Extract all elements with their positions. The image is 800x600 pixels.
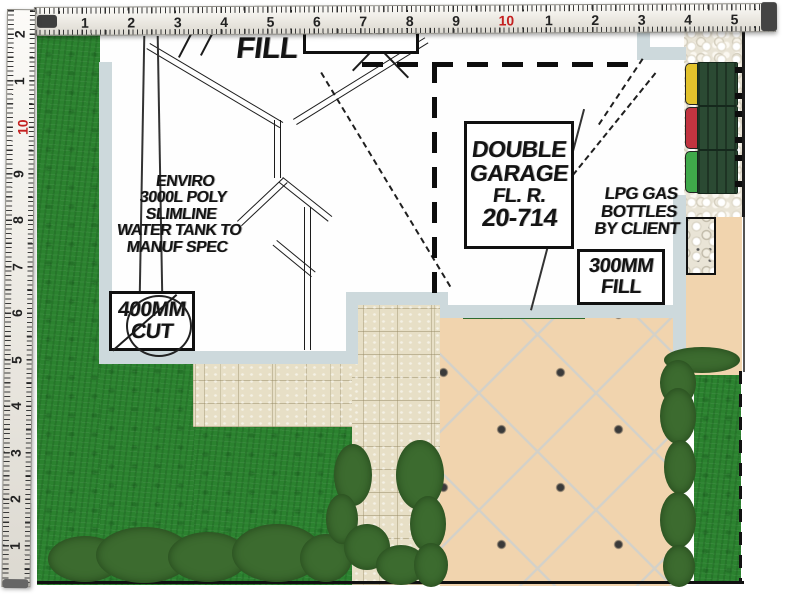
wheelie-bin-yellow[interactable] (685, 62, 739, 104)
roof-ridge-line (274, 120, 281, 178)
box-line: 20-714 (480, 206, 558, 232)
box-line: 300MM (588, 256, 655, 277)
bin-wheel (735, 93, 742, 99)
flower-border-path[interactable] (322, 436, 448, 588)
horizontal-ruler[interactable]: 1234567891012345 (34, 3, 776, 36)
ruler-number: 2 (127, 14, 135, 30)
ruler-number: 4 (684, 11, 692, 27)
ruler-number: 10 (499, 12, 515, 28)
ruler-number: 2 (591, 12, 599, 28)
ruler-number: 2 (7, 495, 23, 503)
ruler-number: 10 (15, 119, 31, 135)
bin-wheel (735, 155, 742, 161)
bin-wheel (735, 181, 742, 187)
ruler-number: 7 (9, 263, 25, 271)
note-line: WATER TANK TO (102, 223, 256, 239)
paved-court-diamond[interactable] (440, 317, 676, 586)
note-line: LPG GAS (591, 185, 691, 203)
box-line: FILL (600, 277, 643, 298)
boundary-line-right (742, 27, 745, 217)
bin-body (697, 150, 738, 194)
water-tank-note[interactable]: ENVIRO 3000L POLY SLIMLINE WATER TANK TO… (100, 174, 262, 256)
flower-border-right[interactable] (658, 345, 744, 587)
ruler-number: 5 (731, 11, 739, 27)
wall-bottom-left (99, 351, 358, 364)
ruler-ticks (24, 10, 35, 586)
note-line: MANUF SPEC (100, 240, 254, 256)
ruler-end-cap (2, 579, 28, 588)
note-line: ENVIRO (108, 174, 262, 190)
ruler-number: 1 (11, 77, 27, 85)
garage-dashed-outline-left (432, 62, 437, 302)
tank-circle (126, 295, 192, 357)
pebble-square[interactable] (686, 217, 716, 275)
ruler-number: 1 (7, 542, 23, 550)
note-line: BY CLIENT (587, 220, 687, 238)
bin-body (697, 106, 738, 150)
lawn-left-strip[interactable] (37, 26, 100, 585)
lpg-note[interactable]: LPG GAS BOTTLES BY CLIENT (587, 185, 691, 238)
ruler-number: 7 (359, 13, 367, 29)
fill-300mm-box[interactable]: 300MM FILL (577, 249, 665, 305)
bin-wheel (735, 111, 742, 117)
ruler-number: 6 (313, 13, 321, 29)
roof-ridge-line (304, 207, 311, 350)
wheelie-bin-green[interactable] (685, 150, 739, 192)
ruler-number: 9 (10, 170, 26, 178)
note-line: 3000L POLY (106, 190, 260, 206)
double-garage-box[interactable]: DOUBLE GARAGE FL. R. 20-714 (464, 121, 574, 249)
ruler-number: 8 (10, 216, 26, 224)
ruler-number: 3 (174, 14, 182, 30)
wall-bottom-right (440, 305, 686, 318)
ruler-number: 8 (406, 13, 414, 29)
flower-shrub (664, 440, 696, 494)
ruler-end-hook (761, 2, 777, 31)
ruler-number: 4 (220, 14, 228, 30)
wall-topright-h (637, 47, 686, 60)
ruler-end-cap (37, 15, 57, 28)
ruler-number: 9 (452, 13, 460, 29)
fill-label[interactable]: FILL (220, 34, 314, 65)
flower-shrub (414, 543, 448, 587)
ruler-number: 3 (8, 449, 24, 457)
flower-shrub (660, 388, 696, 444)
flower-shrub (663, 545, 695, 587)
design-canvas[interactable]: FILL ENVIRO 3000L POLY SLIMLINE WATER TA… (0, 0, 800, 600)
flower-shrub (660, 492, 696, 548)
wheelie-bin-red[interactable] (685, 106, 739, 148)
ruler-number: 5 (8, 356, 24, 364)
box-line: GARAGE (469, 162, 570, 186)
box-line: DOUBLE (470, 138, 567, 162)
flower-border-bottom[interactable] (40, 520, 352, 586)
ruler-number: 3 (638, 12, 646, 28)
bin-body (697, 62, 738, 106)
bin-wheel (735, 67, 742, 73)
ruler-number: 6 (9, 309, 25, 317)
ruler-number: 4 (8, 402, 24, 410)
ruler-number: 5 (267, 14, 275, 30)
note-line: SLIMLINE (104, 207, 258, 223)
ruler-number: 2 (12, 30, 28, 38)
vertical-ruler[interactable]: 2110987654321 (1, 9, 36, 587)
note-line: BOTTLES (589, 203, 689, 221)
bin-wheel (735, 137, 742, 143)
garage-dashed-outline-top (362, 62, 632, 67)
ruler-number: 1 (81, 15, 89, 31)
ruler-number: 1 (545, 12, 553, 28)
